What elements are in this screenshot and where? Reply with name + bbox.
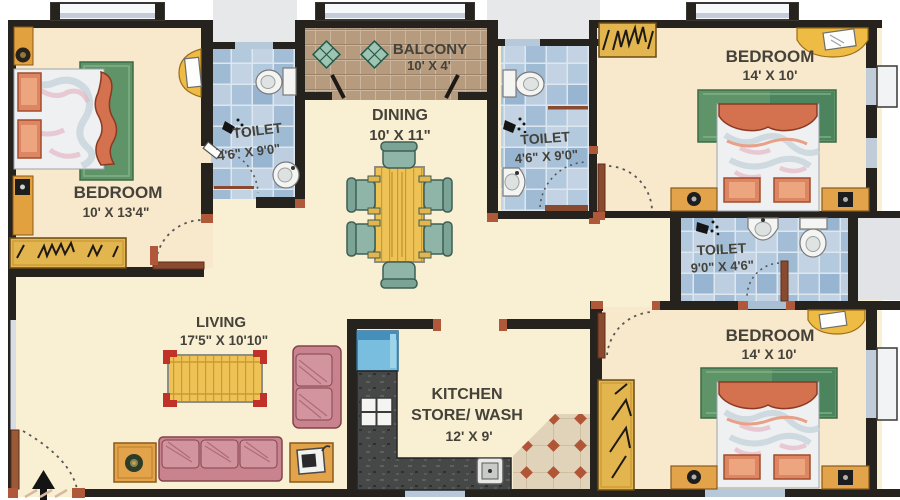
svg-text:LIVING: LIVING (196, 314, 246, 331)
svg-text:DINING: DINING (372, 107, 428, 124)
svg-text:12' X 9': 12' X 9' (445, 428, 492, 444)
svg-text:TOILET: TOILET (696, 240, 747, 259)
svg-text:17'5" X 10'10": 17'5" X 10'10" (180, 333, 268, 348)
svg-text:BEDROOM: BEDROOM (74, 183, 163, 202)
svg-text:BEDROOM: BEDROOM (726, 326, 815, 345)
svg-text:STORE/ WASH: STORE/ WASH (411, 407, 523, 424)
svg-text:KITCHEN: KITCHEN (431, 386, 502, 403)
svg-text:10' X 11": 10' X 11" (369, 127, 431, 144)
svg-text:14' X 10': 14' X 10' (743, 67, 798, 83)
svg-text:10' X 4': 10' X 4' (407, 58, 451, 73)
svg-text:10' X 13'4": 10' X 13'4" (83, 205, 150, 220)
svg-text:BALCONY: BALCONY (393, 41, 467, 58)
svg-text:BEDROOM: BEDROOM (726, 47, 815, 66)
svg-text:14' X 10': 14' X 10' (742, 346, 797, 362)
